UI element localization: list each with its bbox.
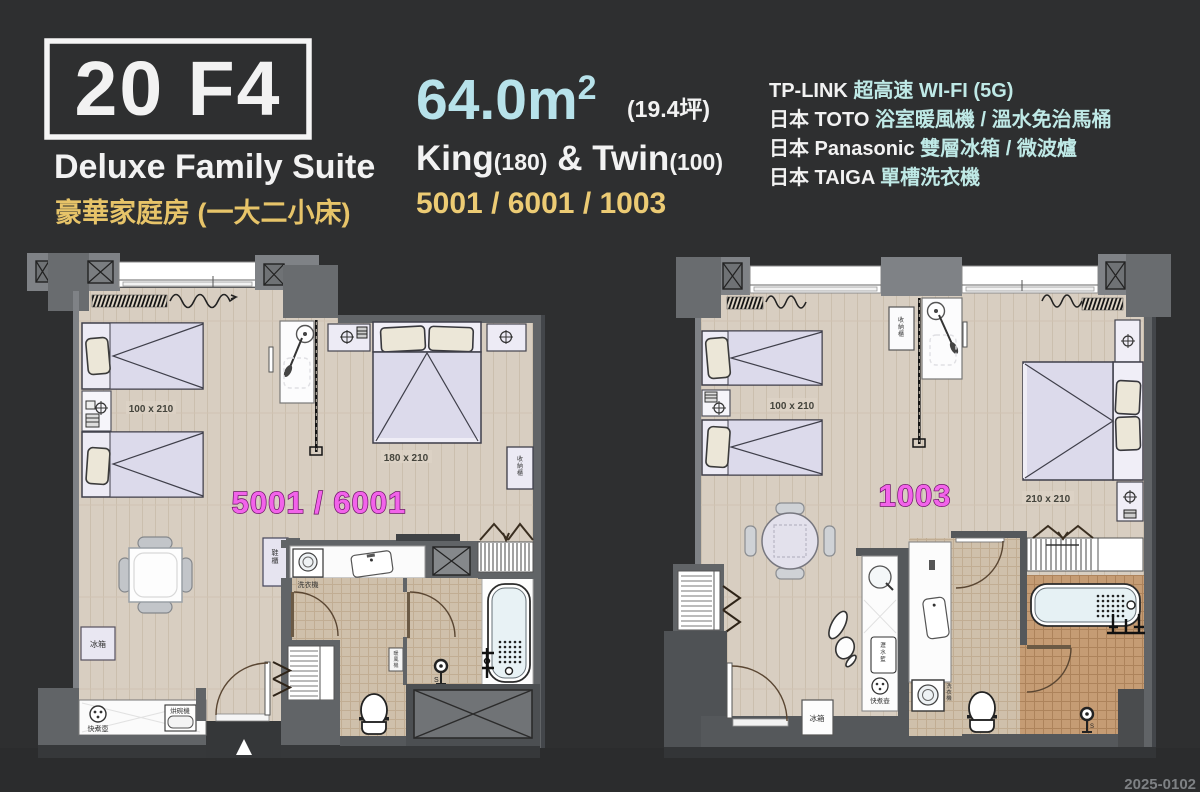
svg-text:鞋櫃: 鞋櫃 <box>272 548 279 565</box>
svg-text:64.0m2: 64.0m2 <box>416 68 597 132</box>
svg-text:S: S <box>1090 724 1094 730</box>
svg-text:100 x 210: 100 x 210 <box>129 404 174 415</box>
svg-text:20 F4: 20 F4 <box>75 46 282 132</box>
svg-text:TP-LINK 超高速 WI-FI (5G): TP-LINK 超高速 WI-FI (5G) <box>769 78 1013 102</box>
svg-text:5001 / 6001: 5001 / 6001 <box>232 485 407 520</box>
svg-text:(19.4坪): (19.4坪) <box>627 96 710 122</box>
svg-text:冰箱: 冰箱 <box>90 639 106 649</box>
svg-text:快煮壺: 快煮壺 <box>88 724 109 733</box>
svg-text:日本 TOTO 浴室暖風機 / 溫水免治馬桶: 日本 TOTO 浴室暖風機 / 溫水免治馬桶 <box>769 107 1112 131</box>
svg-text:Deluxe Family Suite: Deluxe Family Suite <box>54 148 375 186</box>
svg-text:收納櫃: 收納櫃 <box>898 316 904 338</box>
svg-text:100 x 210: 100 x 210 <box>770 401 815 412</box>
svg-text:洗衣機: 洗衣機 <box>946 682 952 702</box>
svg-text:收納櫃: 收納櫃 <box>517 455 523 477</box>
svg-text:S: S <box>434 677 439 684</box>
svg-text:冰箱: 冰箱 <box>810 713 825 723</box>
svg-text:1003: 1003 <box>879 478 952 513</box>
svg-text:洗衣機: 洗衣機 <box>298 580 319 589</box>
svg-text:瀝水籃: 瀝水籃 <box>880 641 886 663</box>
svg-text:快煮壺: 快煮壺 <box>870 696 890 705</box>
svg-text:5001 / 6001 / 1003: 5001 / 6001 / 1003 <box>416 187 666 220</box>
svg-text:日本 Panasonic 雙層冰箱 / 微波爐: 日本 Panasonic 雙層冰箱 / 微波爐 <box>769 136 1077 160</box>
svg-text:2025-0102: 2025-0102 <box>1124 776 1196 792</box>
svg-text:210 x 210: 210 x 210 <box>1026 494 1071 505</box>
svg-text:烘碗機: 烘碗機 <box>170 706 190 715</box>
svg-text:180 x 210: 180 x 210 <box>384 453 429 464</box>
svg-text:日本 TAIGA 單槽洗衣機: 日本 TAIGA 單槽洗衣機 <box>769 165 980 189</box>
svg-text:暖風機: 暖風機 <box>393 650 398 669</box>
svg-text:豪華家庭房 (一大二小床): 豪華家庭房 (一大二小床) <box>55 197 350 228</box>
